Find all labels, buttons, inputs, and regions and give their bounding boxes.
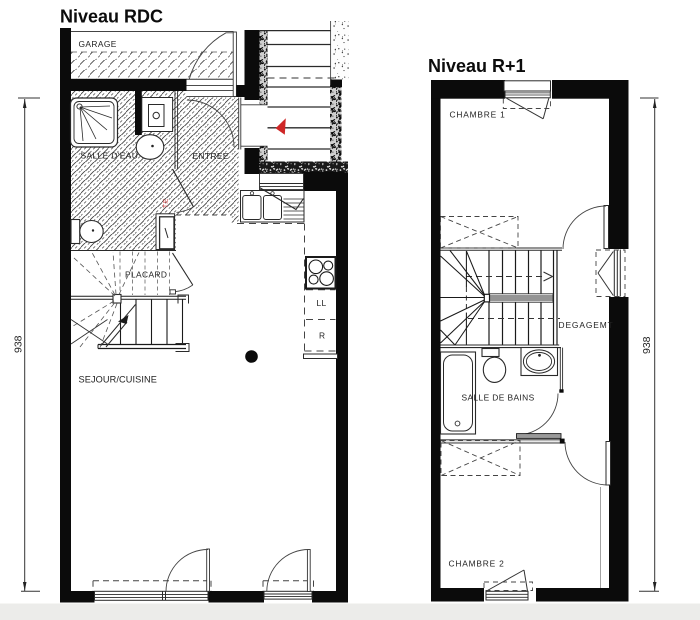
svg-text:DEGAGEMT: DEGAGEMT — [559, 320, 614, 330]
svg-text:938: 938 — [13, 335, 25, 353]
svg-text:SEJOUR/CUISINE: SEJOUR/CUISINE — [79, 375, 157, 385]
svg-text:ENTREE: ENTREE — [193, 151, 229, 161]
svg-text:PLACARD: PLACARD — [125, 270, 167, 280]
svg-text:R: R — [319, 331, 325, 341]
svg-text:CHAMBRE 2: CHAMBRE 2 — [449, 559, 505, 569]
svg-text:LL: LL — [317, 298, 327, 308]
svg-text:SALLE D'EAU: SALLE D'EAU — [81, 151, 139, 161]
svg-text:SALLE DE BAINS: SALLE DE BAINS — [462, 393, 535, 403]
svg-text:Niveau R+1: Niveau R+1 — [428, 56, 526, 76]
svg-text:938: 938 — [641, 336, 653, 354]
svg-text:Niveau RDC: Niveau RDC — [60, 7, 163, 27]
svg-text:GARAGE: GARAGE — [79, 39, 117, 49]
svg-text:CHAMBRE 1: CHAMBRE 1 — [450, 110, 506, 120]
svg-text:T.E: T.E — [163, 198, 170, 208]
